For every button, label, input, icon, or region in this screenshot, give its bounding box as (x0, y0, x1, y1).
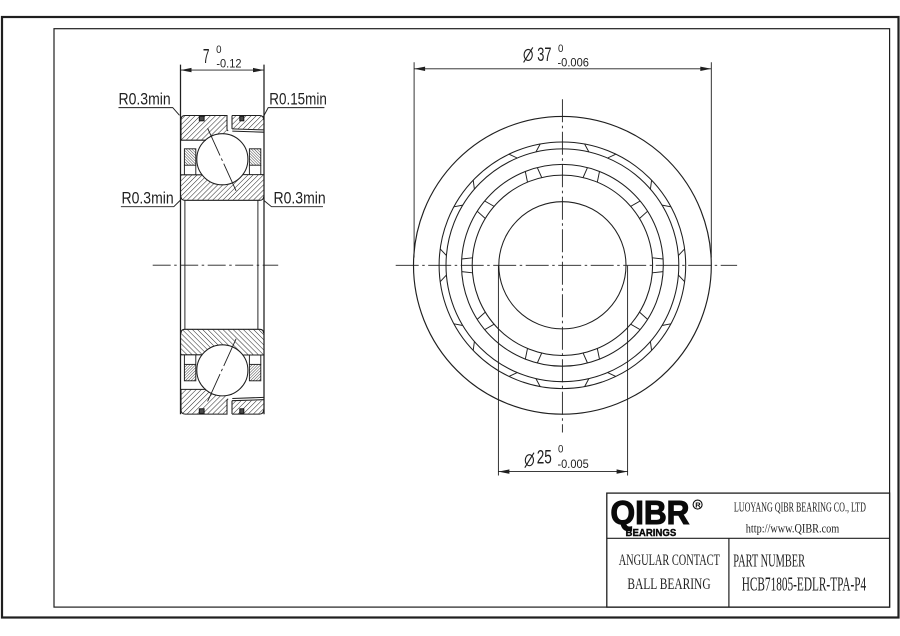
svg-text:25: 25 (537, 448, 552, 469)
svg-text:LUOYANG QIBR BEARING CO., LTD: LUOYANG QIBR BEARING CO., LTD (734, 499, 866, 514)
svg-text:0: 0 (216, 44, 221, 56)
svg-text:PART NUMBER: PART NUMBER (733, 550, 805, 570)
svg-text:0: 0 (558, 444, 563, 456)
svg-text:R0.3min: R0.3min (122, 188, 174, 207)
svg-text:R0.15min: R0.15min (269, 89, 327, 108)
svg-text:http://www.QIBR.com: http://www.QIBR.com (746, 520, 840, 535)
svg-text:-0.12: -0.12 (216, 57, 241, 71)
svg-text:7: 7 (203, 46, 210, 68)
svg-text:BEARINGS: BEARINGS (626, 527, 677, 539)
svg-text:BALL BEARING: BALL BEARING (627, 576, 711, 593)
svg-text:0: 0 (558, 43, 563, 55)
svg-text:R: R (695, 501, 701, 510)
svg-text:R0.3min: R0.3min (274, 188, 326, 207)
svg-text:R0.3min: R0.3min (119, 89, 171, 108)
svg-text:-0.006: -0.006 (558, 56, 590, 70)
svg-text:ANGULAR CONTACT: ANGULAR CONTACT (619, 552, 720, 569)
svg-text:37: 37 (537, 45, 551, 66)
svg-text:-0.005: -0.005 (558, 457, 589, 471)
svg-text:HCB71805-EDLR-TPA-P4: HCB71805-EDLR-TPA-P4 (742, 574, 867, 596)
